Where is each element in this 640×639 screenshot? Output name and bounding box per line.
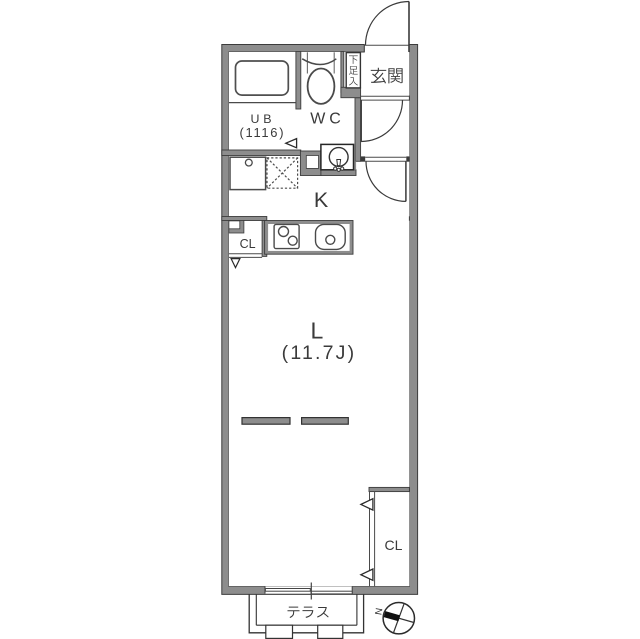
svg-text:(1116): (1116) — [240, 125, 284, 140]
svg-text:CL: CL — [240, 237, 256, 251]
svg-text:CL: CL — [385, 537, 403, 553]
svg-text:(11.7J): (11.7J) — [282, 342, 357, 364]
svg-text:K: K — [314, 188, 329, 212]
svg-text:L: L — [311, 317, 324, 343]
